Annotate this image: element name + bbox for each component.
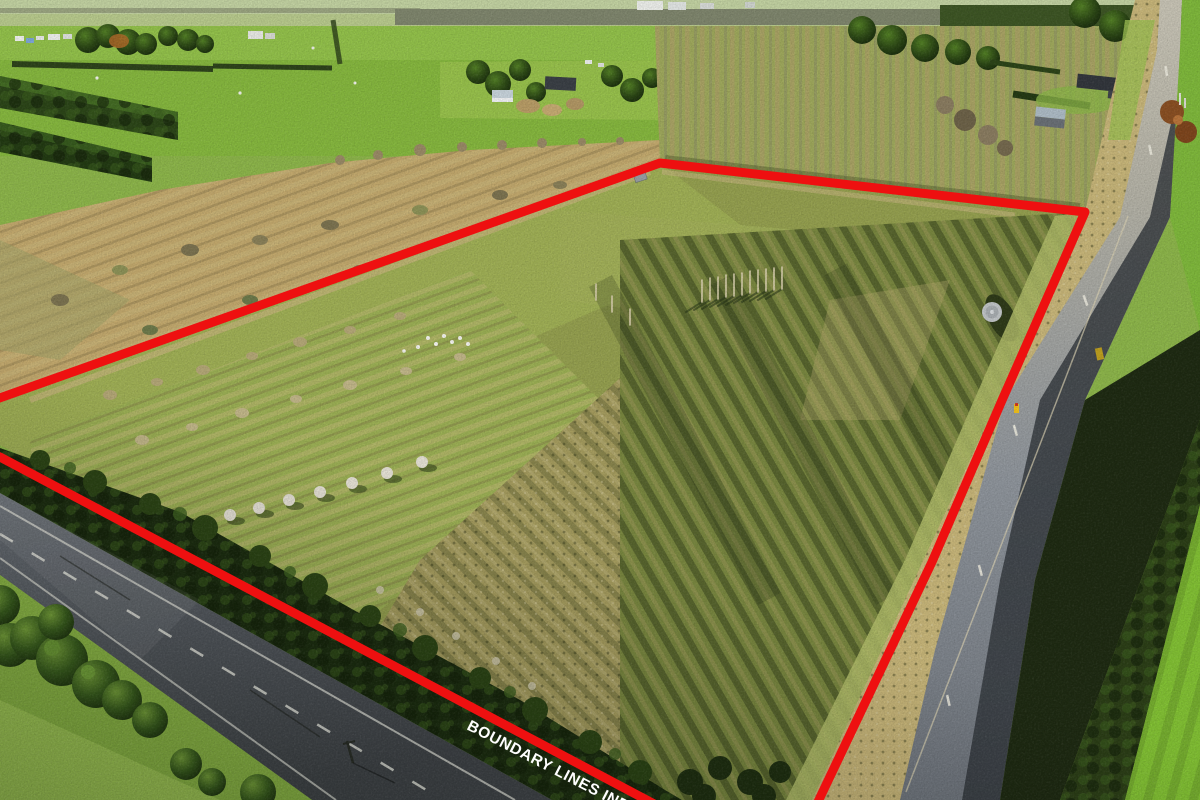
film-grain-light: [0, 0, 1200, 800]
aerial-photo: BOUNDARY LINES INDICATIVE: [0, 0, 1200, 800]
listing-photo: BOUNDARY LINES INDICATIVE: [0, 0, 1200, 800]
